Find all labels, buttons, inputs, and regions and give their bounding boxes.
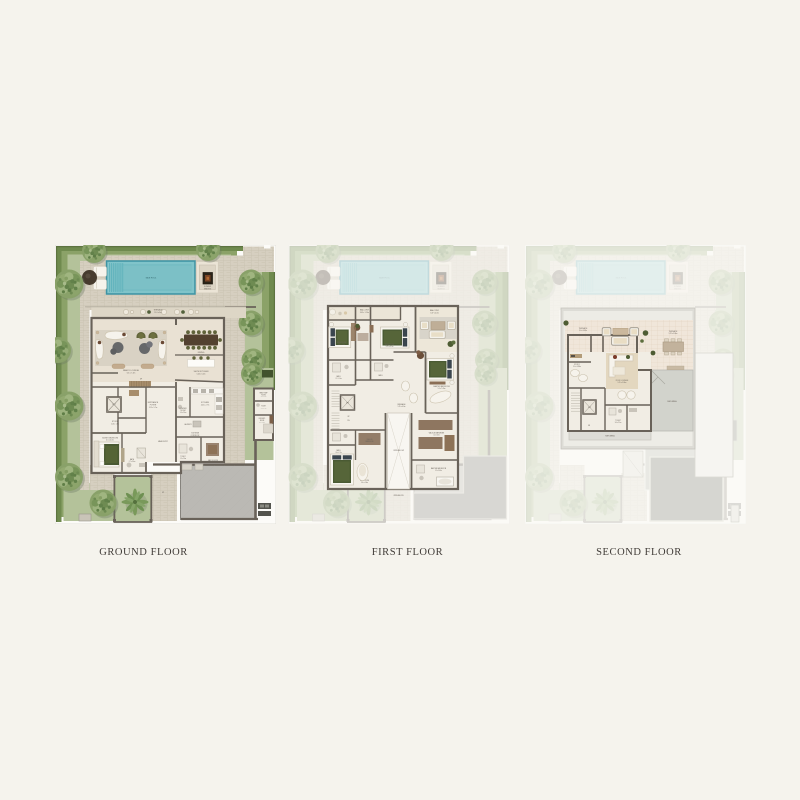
svg-text:ROOF LOUNGE: ROOF LOUNGE — [616, 380, 629, 382]
svg-text:FAMILY LOUNGE: FAMILY LOUNGE — [123, 369, 140, 372]
svg-text:1.3 x 2.6m: 1.3 x 2.6m — [180, 458, 186, 460]
svg-text:BEDROOM: BEDROOM — [385, 344, 394, 346]
svg-text:2.26 x 1.8m: 2.26 x 1.8m — [111, 423, 120, 425]
svg-text:4.5 x 4.0m: 4.5 x 4.0m — [106, 440, 114, 442]
svg-text:5.5 x 7.45m: 5.5 x 7.45m — [438, 388, 447, 390]
svg-text:5.15 x 4.3m: 5.15 x 4.3m — [398, 406, 407, 408]
svg-text:GUEST BEDROOM: GUEST BEDROOM — [102, 438, 118, 440]
svg-text:BEDROOM: BEDROOM — [337, 342, 346, 344]
svg-text:1.7 x 1.4m: 1.7 x 1.4m — [261, 407, 267, 409]
svg-text:GROUND FLOOR: GROUND FLOOR — [99, 547, 188, 558]
svg-text:5.37 x 4.0m: 5.37 x 4.0m — [430, 312, 439, 314]
svg-text:TOILET: TOILET — [180, 456, 185, 458]
svg-text:5.0 x 3.85m: 5.0 x 3.85m — [573, 366, 582, 368]
svg-text:6.6 x 7.4m: 6.6 x 7.4m — [127, 373, 136, 375]
svg-text:SECOND FLOOR: SECOND FLOOR — [596, 547, 682, 558]
svg-text:1.6 x 2.4m: 1.6 x 2.4m — [180, 412, 187, 414]
svg-text:5.0 x 4.4m: 5.0 x 4.4m — [361, 482, 369, 484]
svg-text:MEP AREA: MEP AREA — [605, 435, 615, 438]
svg-text:3.0 x 2.1m: 3.0 x 2.1m — [615, 422, 622, 424]
svg-text:DN: DN — [347, 420, 349, 422]
svg-text:9.45 x 1.21m: 9.45 x 1.21m — [360, 312, 370, 314]
svg-text:OPEN BELOW: OPEN BELOW — [393, 450, 404, 452]
svg-text:3.0 x 2.6m: 3.0 x 2.6m — [210, 462, 216, 464]
svg-text:DN: DN — [588, 425, 590, 427]
svg-text:9.15 x 5.06m: 9.15 x 5.06m — [618, 382, 627, 384]
svg-text:FIRST FLOOR: FIRST FLOOR — [372, 547, 444, 558]
svg-text:5.78 x 5.04m: 5.78 x 5.04m — [669, 333, 678, 335]
svg-text:4.0 x 3.0m: 4.0 x 3.0m — [433, 435, 439, 437]
svg-text:TOILET: TOILET — [615, 420, 621, 422]
svg-text:STUDY: STUDY — [574, 364, 581, 366]
svg-text:7.5M WIDE: 7.5M WIDE — [191, 433, 199, 435]
svg-text:2.7 x 1.9m: 2.7 x 1.9m — [335, 378, 341, 380]
svg-text:5.15 x 5.7m: 5.15 x 5.7m — [149, 407, 158, 409]
svg-text:LIFT: LIFT — [346, 403, 349, 405]
svg-text:FOYER: FOYER — [150, 404, 157, 406]
svg-text:ROOM: ROOM — [181, 410, 187, 412]
svg-text:UP: UP — [347, 416, 349, 418]
svg-text:2.7 x 1.5m: 2.7 x 1.5m — [259, 422, 265, 424]
svg-text:4.0 x 4.0m: 4.0 x 4.0m — [338, 344, 346, 346]
svg-text:11.0 x 3m: 11.0 x 3m — [154, 312, 162, 314]
svg-text:LIFT: LIFT — [588, 407, 591, 409]
svg-text:DRIVER'S: DRIVER'S — [259, 418, 266, 420]
svg-text:5.45 x 2.6m: 5.45 x 2.6m — [197, 355, 206, 357]
svg-text:STORE: STORE — [112, 421, 119, 423]
svg-text:BALCONY: BALCONY — [360, 309, 370, 312]
svg-text:TERRACE: TERRACE — [669, 330, 678, 333]
svg-text:5.0 x 3.47m: 5.0 x 3.47m — [579, 330, 588, 332]
svg-text:PASSAGE: PASSAGE — [398, 403, 407, 406]
svg-text:TOILET: TOILET — [261, 406, 266, 408]
svg-text:4.45 x 2.7m: 4.45 x 2.7m — [201, 404, 210, 406]
svg-text:5.2 x 3.45m: 5.2 x 3.45m — [435, 470, 442, 472]
svg-text:KITCHEN: KITCHEN — [201, 402, 210, 404]
svg-text:LIFT: LIFT — [112, 404, 115, 406]
svg-text:5.45 x 5.4m: 5.45 x 5.4m — [197, 374, 206, 376]
svg-text:OPEN BELOW: OPEN BELOW — [393, 495, 404, 497]
svg-text:3.0 x 2.7m: 3.0 x 2.7m — [335, 452, 341, 454]
svg-text:MEP AREA: MEP AREA — [667, 400, 677, 403]
svg-text:BALCONY: BALCONY — [430, 309, 440, 312]
svg-text:POWDER: POWDER — [179, 408, 187, 410]
svg-text:SIDE POOL: SIDE POOL — [146, 278, 158, 280]
svg-text:TERRACE: TERRACE — [579, 327, 588, 330]
svg-text:CORRIDOR: CORRIDOR — [191, 435, 201, 437]
svg-text:2.7 x 3.0m: 2.7 x 3.0m — [129, 461, 136, 463]
svg-text:SEATING: SEATING — [204, 287, 212, 290]
svg-text:MASTER BEDROOM: MASTER BEDROOM — [433, 385, 450, 388]
svg-text:2.7 x 1.5m: 2.7 x 1.5m — [261, 396, 267, 398]
svg-text:3.75 x 3.7m: 3.75 x 3.7m — [386, 346, 395, 348]
